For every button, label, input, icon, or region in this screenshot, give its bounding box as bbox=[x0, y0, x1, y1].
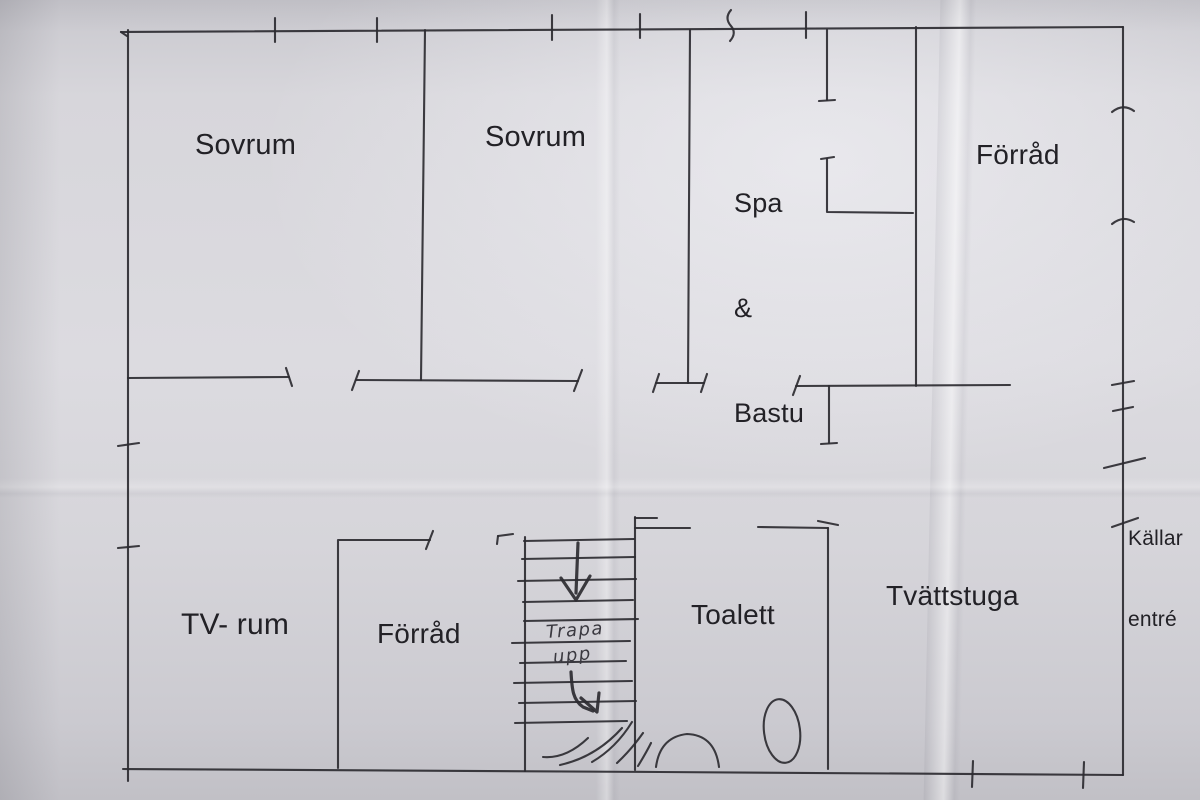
room-label-forrad-lower: Förråd bbox=[377, 618, 461, 650]
room-label-sovrum-2: Sovrum bbox=[485, 121, 586, 154]
stairs-note-upp: upp bbox=[552, 643, 593, 668]
stairs-turn-arrow bbox=[571, 672, 599, 712]
toilet-bowl bbox=[760, 697, 804, 765]
spa-bastu-line-1: Spa bbox=[734, 186, 804, 221]
floor-plan-photo: Sovrum Sovrum Spa & Bastu Förråd Källar … bbox=[0, 0, 1200, 800]
basement-entrance-line-1: Källar bbox=[1128, 525, 1183, 552]
room-label-tv-rum: TV- rum bbox=[181, 608, 289, 642]
room-label-spa-bastu: Spa & Bastu bbox=[734, 116, 804, 501]
basement-entrance-label: Källar entré bbox=[1128, 471, 1183, 687]
corridor-walls bbox=[128, 368, 1010, 444]
room-label-toalett: Toalett bbox=[691, 599, 775, 631]
sauna-walls bbox=[819, 30, 913, 213]
floor-plan-drawing bbox=[0, 0, 1200, 800]
wall-ticks bbox=[118, 10, 1134, 788]
room-label-tvattstuga: Tvättstuga bbox=[886, 580, 1019, 612]
door-swing-arc bbox=[656, 734, 719, 767]
bedroom-divider-walls bbox=[421, 27, 916, 386]
spa-bastu-line-2: & bbox=[734, 291, 804, 326]
basement-entrance-line-2: entré bbox=[1128, 606, 1183, 633]
toilet-room-walls bbox=[635, 518, 838, 769]
spa-bastu-line-3: Bastu bbox=[734, 396, 804, 431]
room-label-forrad-upper: Förråd bbox=[976, 139, 1060, 171]
room-label-sovrum-1: Sovrum bbox=[195, 129, 296, 162]
stairs-down-arrow bbox=[561, 543, 590, 600]
stairs-note-trapa: Trapa bbox=[545, 618, 604, 643]
